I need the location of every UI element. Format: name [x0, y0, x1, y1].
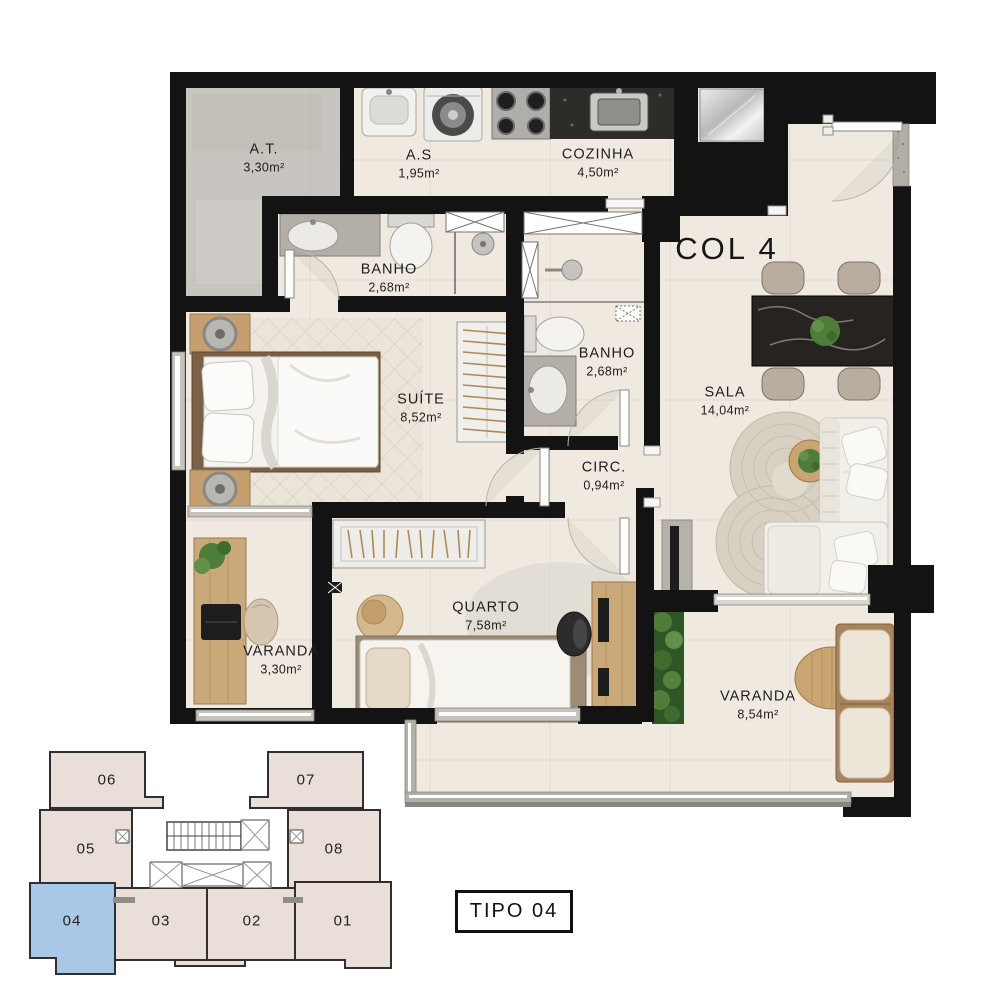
shaft-box [524, 212, 642, 234]
room-label-as: A.S 1,95m² [398, 146, 439, 181]
room-label-varanda1: VARANDA 3,30m² [243, 642, 319, 677]
key-unit-label-01: 01 [334, 913, 353, 930]
varanda1-chair [244, 599, 278, 645]
suite-window [172, 352, 185, 470]
key-rail [113, 897, 135, 903]
quarto-round-table [357, 595, 403, 641]
key-plan [30, 752, 391, 974]
shaft-box [522, 242, 538, 298]
varanda-railing-left [405, 720, 416, 796]
washing-machine [424, 87, 482, 141]
quarto-office-chair [557, 612, 591, 656]
floor-plan-svg [0, 0, 1000, 1000]
room-label-cozinha: COZINHA 4,50m² [562, 145, 634, 180]
type-label: TIPO 04 [470, 900, 558, 923]
column-label: COL 4 [675, 231, 778, 267]
key-unit-label-08: 08 [325, 841, 344, 858]
stove [492, 87, 550, 139]
key-unit-label-06: 06 [98, 772, 117, 789]
room-label-sala: SALA 14,04m² [701, 383, 750, 418]
vent-box [616, 306, 640, 321]
key-unit-label-02: 02 [243, 913, 262, 930]
varanda2-green-wall [650, 612, 684, 724]
room-label-banho2: BANHO 2,68m² [579, 344, 636, 379]
quarto-wardrobe [333, 520, 485, 568]
varanda2-sofa [836, 624, 894, 782]
room-label-varanda2: VARANDA 8,54m² [720, 687, 796, 722]
room-label-banho1: BANHO 2,68m² [361, 260, 418, 295]
key-unit-label-05: 05 [77, 841, 96, 858]
quarto-desk [592, 582, 640, 720]
sala-varanda-slider [714, 594, 870, 605]
key-unit-label-04: 04 [63, 913, 82, 930]
bathroom1-vanity [280, 214, 380, 256]
floorplan-page: A.T. 3,30m² A.S 1,95m² COZINHA 4,50m² BA… [0, 0, 1000, 1000]
suite-varanda-slider [188, 506, 312, 517]
suite-bed [192, 352, 380, 472]
room-label-quarto: QUARTO 7,58m² [452, 598, 520, 633]
type-label-box: TIPO 04 [455, 890, 573, 933]
electrical-symbol [328, 582, 342, 593]
room-label-circ: CIRC. 0,94m² [582, 458, 626, 493]
shaft-box [446, 212, 504, 232]
room-label-at: A.T. 3,30m² [243, 140, 284, 175]
quarto-window [435, 708, 580, 721]
varanda1-desk [194, 538, 246, 704]
suite-nightstand-top [190, 314, 250, 354]
laundry-sink [362, 88, 416, 136]
bathroom2-toilet [524, 316, 584, 352]
varanda-railing-bottom [405, 792, 851, 807]
key-unit-label-07: 07 [297, 772, 316, 789]
concrete-texture [196, 200, 266, 284]
key-rail [283, 897, 303, 903]
suite-nightstand-bottom [190, 470, 250, 508]
bathroom2-vanity [522, 356, 576, 426]
room-label-suite: SUÍTE 8,52m² [397, 390, 445, 425]
key-unit-label-03: 03 [152, 913, 171, 930]
dining-table [752, 296, 898, 366]
varanda1-window [196, 710, 314, 721]
